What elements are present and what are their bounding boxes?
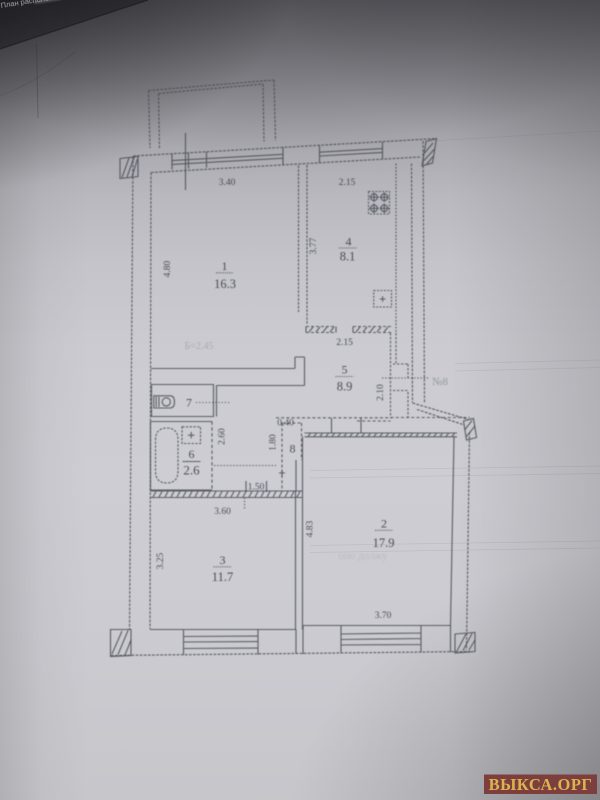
svg-text:ВЫКСА.ОРГ: ВЫКСА.ОРГ	[489, 775, 593, 794]
